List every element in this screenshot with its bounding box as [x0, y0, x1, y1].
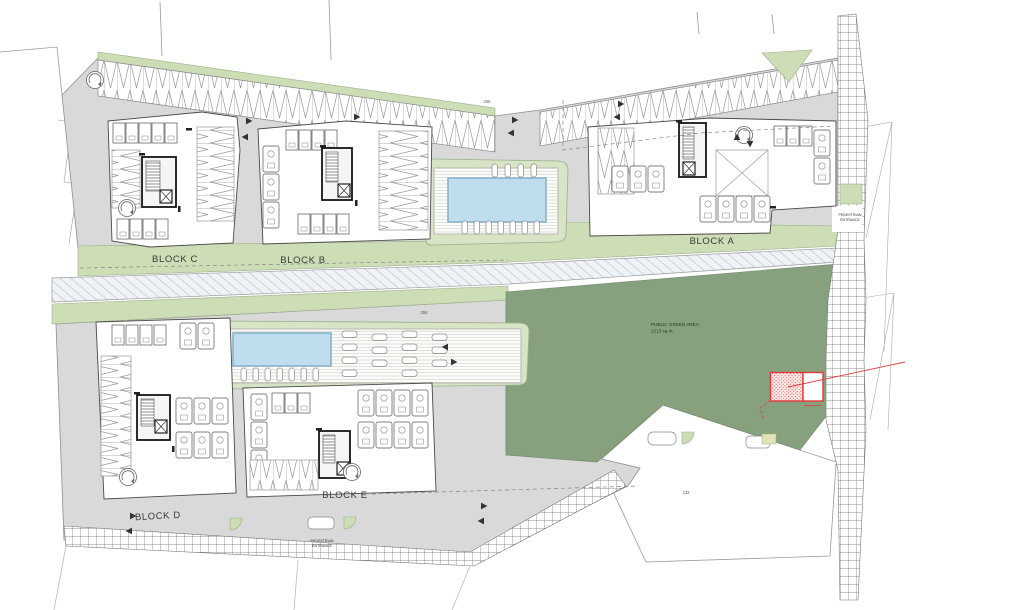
- bath-pod: [194, 398, 210, 424]
- bath-pod: [648, 166, 664, 192]
- lounger: [253, 368, 259, 381]
- lounger: [402, 331, 417, 338]
- unit-room: [165, 123, 177, 143]
- ramp-icon: [120, 469, 137, 486]
- unit-room: [130, 219, 142, 239]
- bath-pod: [376, 422, 392, 448]
- unit-room: [337, 214, 349, 234]
- unit-room: [112, 325, 124, 345]
- door-mark: [134, 392, 140, 395]
- entrance-planter: [762, 434, 776, 444]
- east-entrance-green: [840, 184, 862, 204]
- swimming-pool: [448, 178, 546, 222]
- unit-room: [139, 123, 151, 143]
- unit-room: [126, 325, 138, 345]
- door-mark: [178, 206, 181, 212]
- lounger: [402, 344, 417, 351]
- ref-south-parcel: 232: [683, 490, 691, 495]
- parking-stalls: [250, 460, 318, 490]
- lounger: [474, 221, 480, 234]
- parking-stalls: [197, 127, 234, 221]
- ramp-icon: [119, 200, 136, 217]
- block-c-building: [108, 112, 240, 247]
- bath-pod: [180, 323, 196, 349]
- bath-pod: [358, 390, 374, 416]
- unit-room: [787, 126, 799, 146]
- lounger: [265, 368, 271, 381]
- unit-room: [299, 130, 311, 150]
- lounger: [518, 164, 524, 177]
- lounger: [372, 334, 387, 341]
- public-green-area-label: PUBLIC GREEN AREA:: [651, 322, 700, 327]
- bath-pod: [251, 422, 267, 448]
- unit-room: [156, 219, 168, 239]
- public-green-area-size: 1213 sq.m.: [651, 329, 674, 334]
- entrance-canopy: [308, 517, 334, 529]
- lounger: [342, 344, 357, 351]
- lounger: [462, 221, 468, 234]
- bath-pod: [412, 390, 428, 416]
- elevator: [155, 420, 167, 433]
- unit-room: [286, 130, 298, 150]
- block-a-label: BLOCK A: [690, 236, 735, 247]
- swimming-pool: [233, 333, 331, 366]
- block-e-building: [243, 383, 436, 497]
- lounger: [432, 360, 447, 367]
- survey-line: [329, 0, 331, 60]
- bath-pod: [194, 432, 210, 458]
- lounger: [402, 370, 417, 377]
- lounger: [289, 368, 295, 381]
- lounger: [313, 368, 319, 381]
- unit-room: [140, 325, 152, 345]
- bath-pod: [394, 422, 410, 448]
- bath-pod: [814, 158, 830, 184]
- ramp-icon: [344, 464, 361, 481]
- unit-room: [324, 214, 336, 234]
- bath-pod: [630, 166, 646, 192]
- bath-pod: [754, 196, 770, 222]
- survey-line: [772, 14, 774, 34]
- elevator: [338, 184, 350, 197]
- site-plan-canvas: BLOCK C BLOCK B BLOCK A BLOCK D BLOCK E …: [0, 0, 1024, 610]
- pedestrian-entrance-south-line1: PEDESTRIAN: [311, 539, 334, 543]
- unit-room: [325, 130, 337, 150]
- boundary-line: [0, 47, 62, 95]
- unit-room: [272, 393, 284, 413]
- lounger: [486, 221, 492, 234]
- highlight-parcel-hatched: [771, 373, 804, 402]
- door-mark: [316, 428, 322, 431]
- stairs: [683, 127, 694, 159]
- parking-stalls: [379, 131, 428, 230]
- bath-pod: [376, 390, 392, 416]
- bath-pod: [394, 390, 410, 416]
- ramp-icon: [736, 127, 753, 144]
- site-plan: BLOCK C BLOCK B BLOCK A BLOCK D BLOCK E …: [0, 0, 1024, 610]
- south-pool-terrace: [213, 321, 529, 389]
- entrance-green-icon: [682, 432, 694, 444]
- door-mark: [186, 128, 192, 131]
- block-e-label: BLOCK E: [322, 490, 367, 501]
- bath-pod: [198, 323, 214, 349]
- unit-room: [285, 393, 297, 413]
- bath-pod: [718, 196, 734, 222]
- bath-pod: [263, 174, 279, 200]
- pedestrian-entrance-east-line1: PEDESTRIAN: [839, 213, 862, 217]
- door-mark: [172, 446, 175, 452]
- pedestrian-entrance-south-line2: ENTRANCE: [312, 544, 332, 548]
- lounger: [342, 357, 357, 364]
- ref-north-drive: 256: [484, 99, 492, 104]
- door-mark: [355, 200, 358, 206]
- unit-room: [298, 393, 310, 413]
- unit-room: [800, 126, 812, 146]
- entrance-canopy: [648, 432, 676, 445]
- parking-stalls: [101, 356, 131, 476]
- lounger: [522, 221, 528, 234]
- pedestrian-entrance-east-line2: ENTRANCE: [840, 218, 860, 222]
- bath-pod: [358, 422, 374, 448]
- unit-room: [126, 123, 138, 143]
- unit-room: [117, 219, 129, 239]
- stairs: [326, 152, 338, 182]
- unit-room: [298, 214, 310, 234]
- door-mark: [139, 153, 145, 156]
- lounger: [241, 368, 247, 381]
- lounger: [498, 221, 504, 234]
- lounger: [531, 164, 537, 177]
- lounger: [342, 331, 357, 338]
- door-mark: [320, 145, 326, 148]
- bath-pod: [612, 166, 628, 192]
- highlight-parcel-plain: [803, 373, 823, 402]
- bath-pod: [251, 394, 267, 420]
- unit-room: [311, 214, 323, 234]
- bath-pod: [176, 398, 192, 424]
- unit-room: [152, 123, 164, 143]
- unit-room: [113, 123, 125, 143]
- lounger: [372, 360, 387, 367]
- bath-pod: [176, 432, 192, 458]
- lounger: [492, 164, 498, 177]
- block-b-building: [258, 121, 432, 244]
- lounger: [432, 334, 447, 341]
- elevator: [683, 162, 695, 175]
- door-mark: [770, 206, 776, 209]
- lounger: [342, 370, 357, 377]
- stairs: [141, 399, 154, 426]
- bath-pod: [700, 196, 716, 222]
- bath-pod: [263, 146, 279, 172]
- lounger: [301, 368, 307, 381]
- unit-room: [154, 325, 166, 345]
- stairs: [146, 161, 160, 191]
- lounger: [372, 347, 387, 354]
- north-pool-terrace: [424, 159, 568, 245]
- bath-pod: [263, 202, 279, 228]
- stairs: [323, 435, 335, 463]
- lounger: [277, 368, 283, 381]
- bath-pod: [212, 432, 228, 458]
- bath-pod: [412, 422, 428, 448]
- block-b-label: BLOCK B: [280, 255, 325, 266]
- lounger: [402, 357, 417, 364]
- elevator: [160, 190, 172, 203]
- bath-pod: [736, 196, 752, 222]
- block-c-label: BLOCK C: [152, 254, 198, 265]
- bath-pod: [814, 130, 830, 156]
- bath-pod: [212, 398, 228, 424]
- ref-central-path: 258: [421, 310, 429, 315]
- door-mark: [676, 120, 682, 123]
- survey-line: [697, 12, 699, 34]
- lounger: [534, 221, 540, 234]
- block-d-building: [96, 318, 236, 499]
- ramp-icon: [87, 72, 104, 89]
- survey-line: [160, 2, 162, 56]
- lounger: [510, 221, 516, 234]
- unit-room: [143, 219, 155, 239]
- lounger: [505, 164, 511, 177]
